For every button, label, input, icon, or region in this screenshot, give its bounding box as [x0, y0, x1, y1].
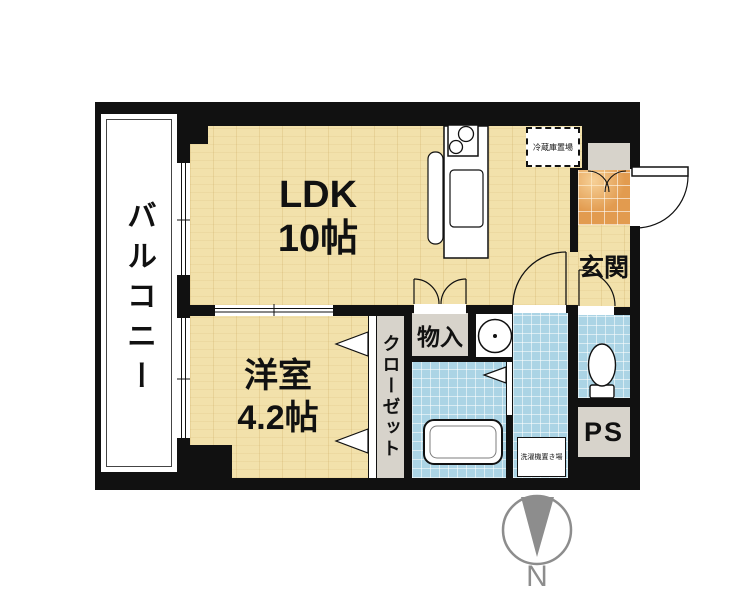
- floor-plan: バルコニー LDK 10帖 冷蔵庫置場 洋室 4.2帖 クローゼット 物入 洗濯…: [0, 0, 737, 598]
- closet-door-track: [368, 316, 377, 478]
- washroom-door-opening: [513, 305, 566, 313]
- shoe-cabinet: [588, 143, 630, 170]
- bath-door-track: [506, 362, 513, 415]
- room-pipe-space: PS: [578, 407, 630, 457]
- front-door-opening: [630, 169, 640, 226]
- front-door-icon: [632, 167, 688, 228]
- ldk-label: LDK 10帖: [238, 178, 398, 258]
- room-toilet: [578, 315, 630, 398]
- ldk-label-line2: 10帖: [278, 218, 358, 262]
- entrance-doorway: [568, 252, 578, 305]
- western-room-label-line1: 洋室: [244, 355, 312, 398]
- western-room-window: [177, 318, 190, 438]
- ldk-window: [177, 163, 190, 275]
- toilet-door-opening: [578, 306, 614, 315]
- western-room-label: 洋室 4.2帖: [198, 352, 358, 442]
- washing-machine-space: 洗濯機置き場: [517, 437, 566, 477]
- western-room-label-line2: 4.2帖: [237, 397, 318, 440]
- vanity-counter: [475, 313, 513, 358]
- refrigerator-space: 冷蔵庫置場: [526, 127, 580, 167]
- compass-north-label: N: [507, 560, 567, 594]
- closet-label: クローゼット: [377, 321, 404, 473]
- compass-icon: [503, 496, 571, 564]
- ldk-label-line1: LDK: [279, 174, 357, 218]
- partition-opening: [215, 305, 333, 316]
- room-storage: 物入: [412, 313, 468, 356]
- wall-corner-topleft: [190, 126, 208, 144]
- balcony-label: バルコニー: [118, 192, 158, 408]
- storage-door-opening: [414, 304, 466, 314]
- wall-corner-bottomleft: [190, 445, 232, 478]
- room-bath: [412, 362, 506, 478]
- entrance-tile: [578, 170, 630, 225]
- room-entrance: 玄関: [578, 225, 630, 307]
